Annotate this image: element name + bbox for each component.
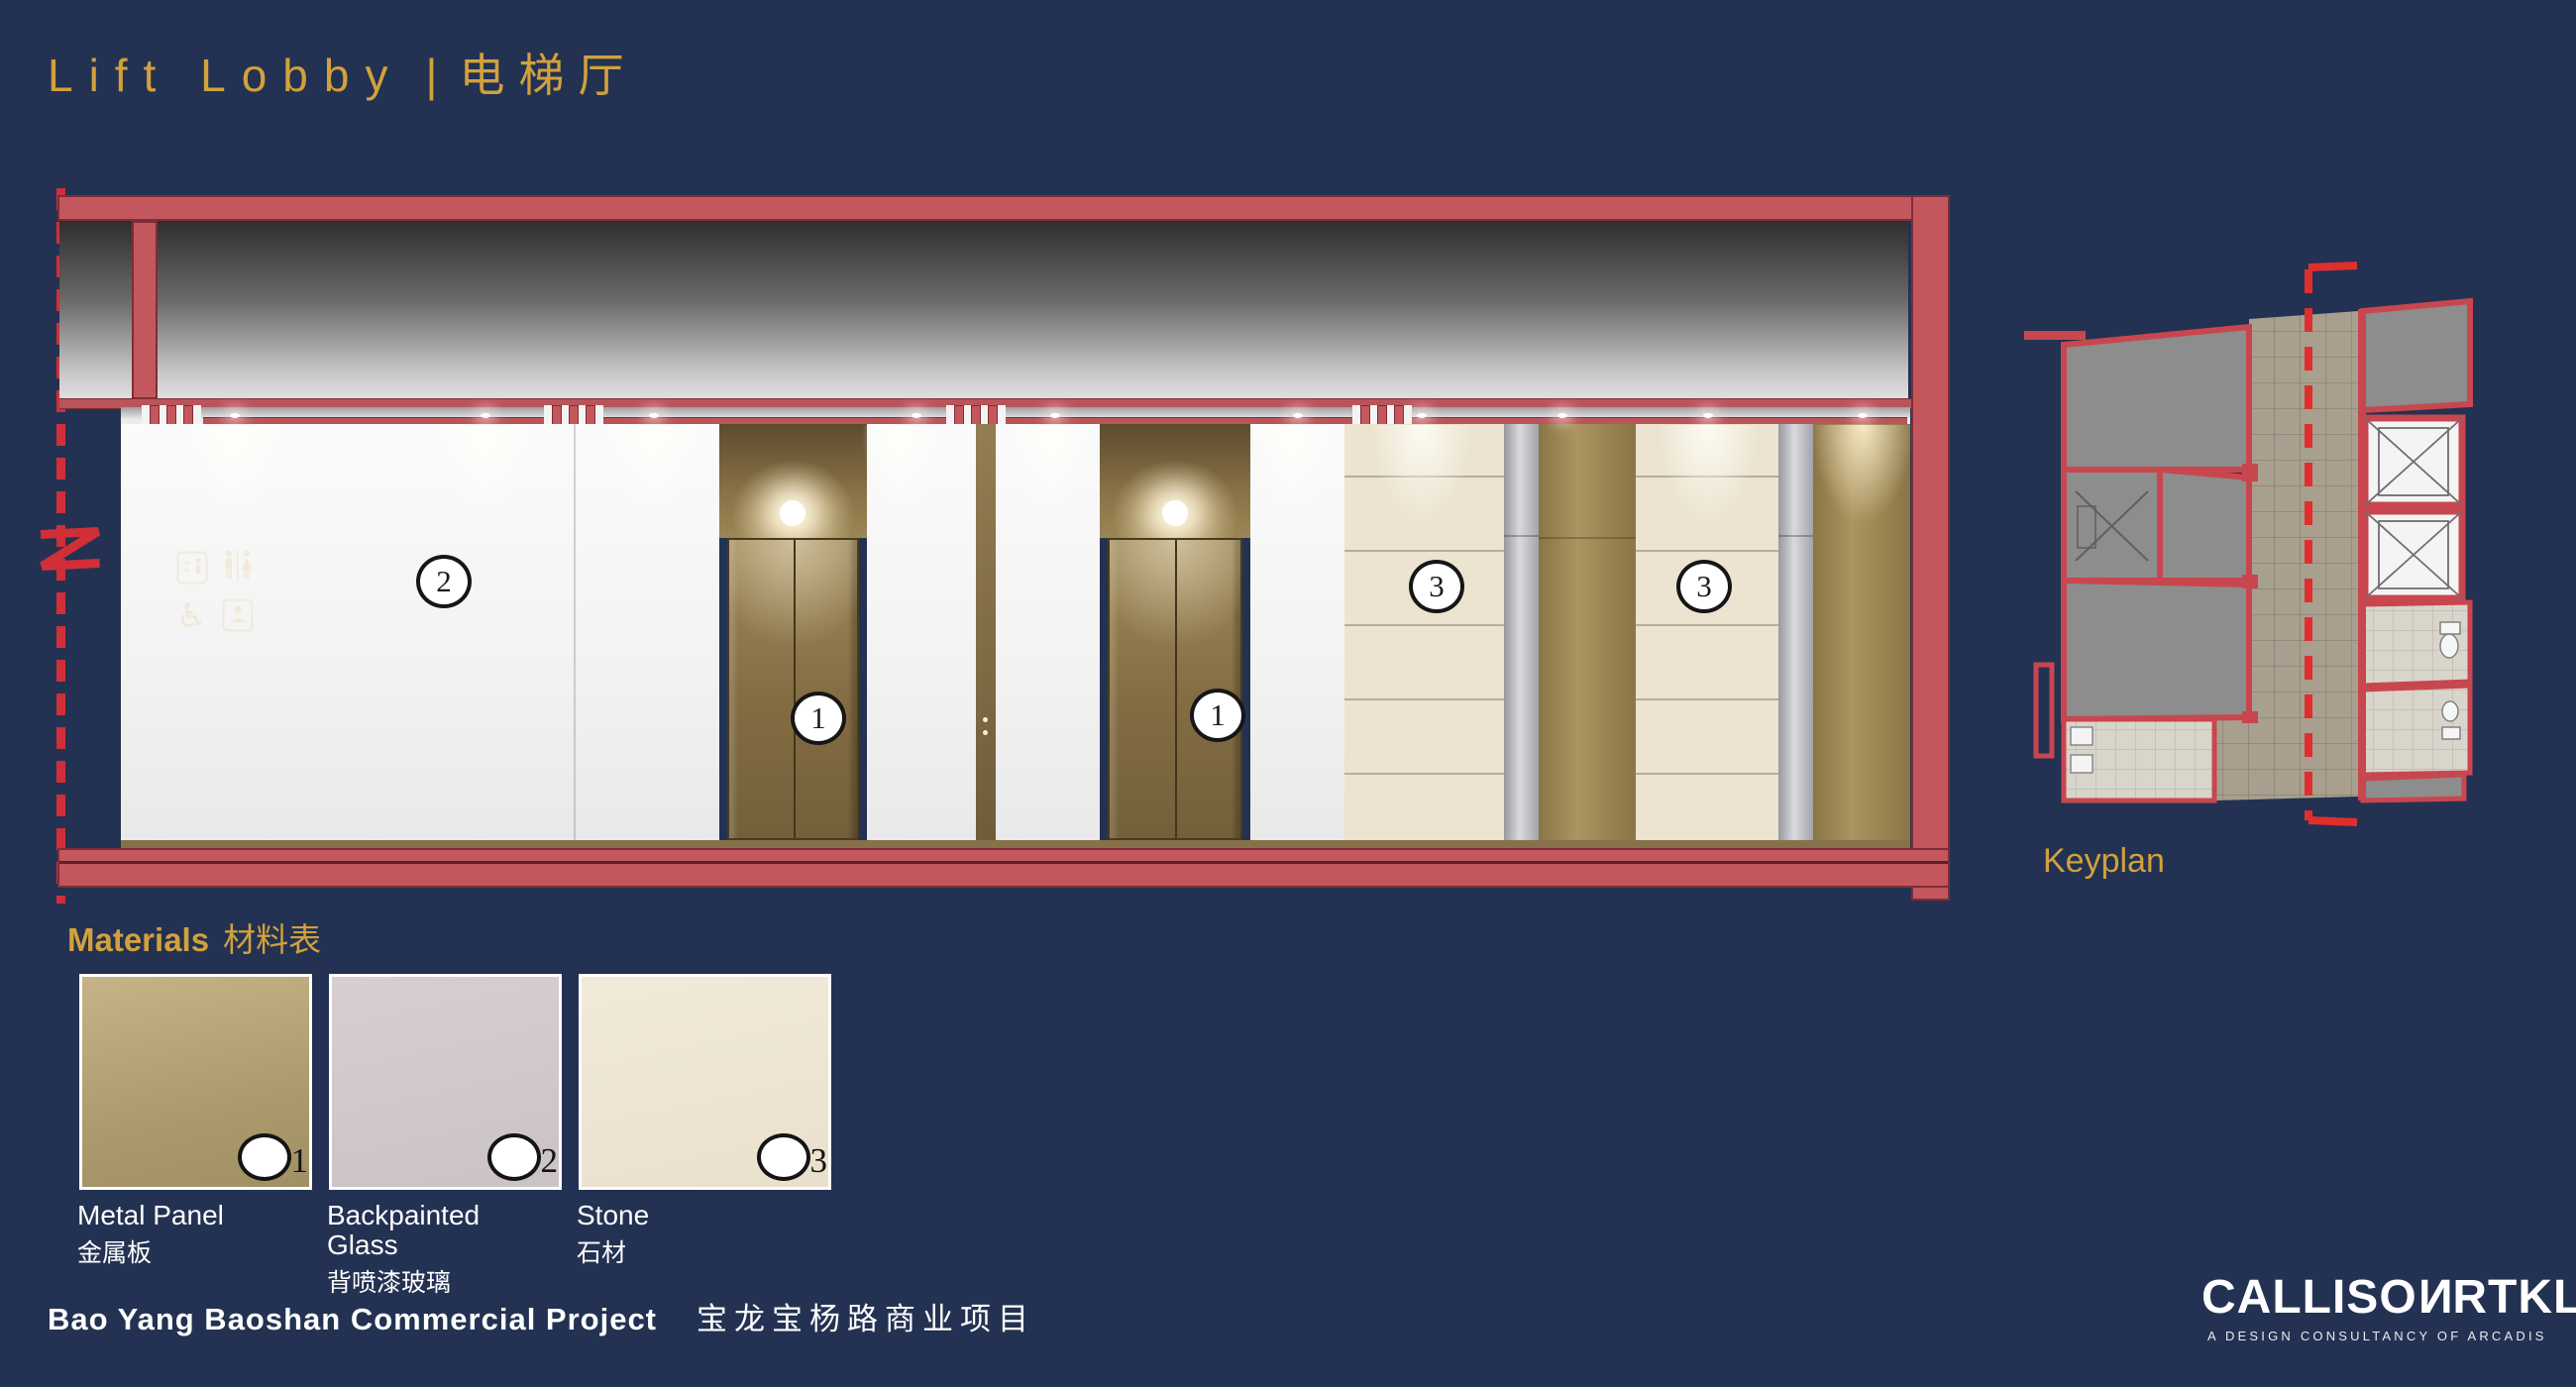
material-name-en: Backpainted Glass — [327, 1201, 515, 1260]
skirting — [121, 840, 1910, 848]
material-number: 3 — [810, 1141, 828, 1181]
cove-light — [1703, 413, 1713, 418]
backpainted-glass-wall — [121, 424, 719, 840]
call-button-icon — [983, 730, 988, 735]
logo-wordmark: CALLISONRTKL — [2201, 1270, 2576, 1325]
ceiling-hanger — [544, 405, 603, 426]
cove-light — [1050, 413, 1060, 418]
material-number: 1 — [291, 1141, 309, 1181]
hall-lantern-light — [780, 500, 805, 526]
cove-light — [649, 413, 659, 418]
material-tag: 1 — [1190, 689, 1245, 742]
cove-light — [1557, 413, 1567, 418]
cove-light — [1858, 413, 1868, 418]
logo-tagline: A DESIGN CONSULTANCY OF ARCADIS — [2207, 1329, 2576, 1343]
floor-slab-section — [57, 848, 1950, 888]
project-title: Bao Yang Baoshan Commercial Project宝龙宝杨路… — [48, 1294, 1035, 1338]
backpainted-glass-wall — [1250, 424, 1344, 840]
hall-lantern-light — [1162, 500, 1188, 526]
stone-panel — [1636, 424, 1778, 840]
material-name-zh: 金属板 — [77, 1233, 224, 1269]
material-tag: 3 — [1676, 560, 1732, 613]
material-label: Backpainted Glass 背喷漆玻璃 — [327, 1201, 515, 1299]
wheelchair-icon: ♿ — [176, 596, 206, 636]
material-tag: 3 — [1409, 560, 1464, 613]
break-line-icon — [30, 525, 109, 581]
stainless-strip — [1778, 424, 1813, 840]
ceiling-hanger — [142, 405, 201, 426]
ceiling-hanger — [946, 405, 1006, 426]
right-wall-section — [1911, 195, 1950, 901]
cove-light — [230, 413, 240, 418]
material-number-oval — [757, 1133, 810, 1181]
stainless-strip — [1504, 424, 1539, 840]
backpainted-glass-wall — [996, 424, 1100, 840]
material-label: Stone 石材 — [577, 1201, 649, 1269]
material-name-en: Metal Panel — [77, 1201, 224, 1230]
material-number-oval — [238, 1133, 291, 1181]
materials-header: Materials材料表 — [67, 913, 321, 961]
ceiling-hanger — [1352, 405, 1412, 426]
keyplan-drawing — [2016, 254, 2482, 838]
material-label: Metal Panel 金属板 — [77, 1201, 224, 1269]
keyplan-label: Keyplan — [2043, 842, 2165, 881]
structure-column-section — [132, 221, 158, 399]
material-name-zh: 石材 — [577, 1233, 649, 1269]
ceiling-slab-section — [57, 195, 1950, 221]
project-title-en: Bao Yang Baoshan Commercial Project — [48, 1302, 657, 1336]
slide: Lift Lobby|电梯厅 — [0, 0, 2576, 1387]
material-tag: 1 — [791, 692, 846, 745]
baby-care-sign-icon — [222, 598, 254, 632]
call-button-icon — [983, 717, 988, 722]
ceiling-void — [59, 221, 1908, 399]
material-name-en: Stone — [577, 1201, 649, 1230]
lift-sign-icon — [176, 551, 208, 585]
cove-light — [1417, 413, 1427, 418]
backpainted-glass-wall — [867, 424, 976, 840]
floor-slab-line — [59, 861, 1948, 864]
material-number: 2 — [541, 1141, 559, 1181]
reversed-n-glyph: N — [2417, 1270, 2453, 1325]
stone-panel — [1344, 424, 1504, 840]
lift-door — [727, 538, 859, 840]
callisonrtkl-logo: CALLISONRTKL A DESIGN CONSULTANCY OF ARC… — [2201, 1270, 2576, 1343]
cove-light — [912, 413, 921, 418]
materials-header-zh: 材料表 — [223, 921, 321, 958]
metal-panel — [1813, 424, 1910, 840]
metal-panel — [1539, 424, 1636, 840]
cove-light — [1293, 413, 1303, 418]
material-tag: 2 — [416, 555, 472, 608]
metal-trim-strip — [976, 424, 996, 840]
cove-light — [481, 413, 490, 418]
panel-joint — [574, 424, 576, 840]
material-swatch-backpainted-glass: 2 — [329, 974, 562, 1190]
materials-header-en: Materials — [67, 921, 209, 958]
material-swatch-stone: 3 — [579, 974, 831, 1190]
material-swatch-metal-panel: 1 — [79, 974, 312, 1190]
restroom-sign-icon — [222, 549, 254, 585]
project-title-zh: 宝龙宝杨路商业项目 — [697, 1302, 1035, 1337]
material-number-oval — [487, 1133, 541, 1181]
